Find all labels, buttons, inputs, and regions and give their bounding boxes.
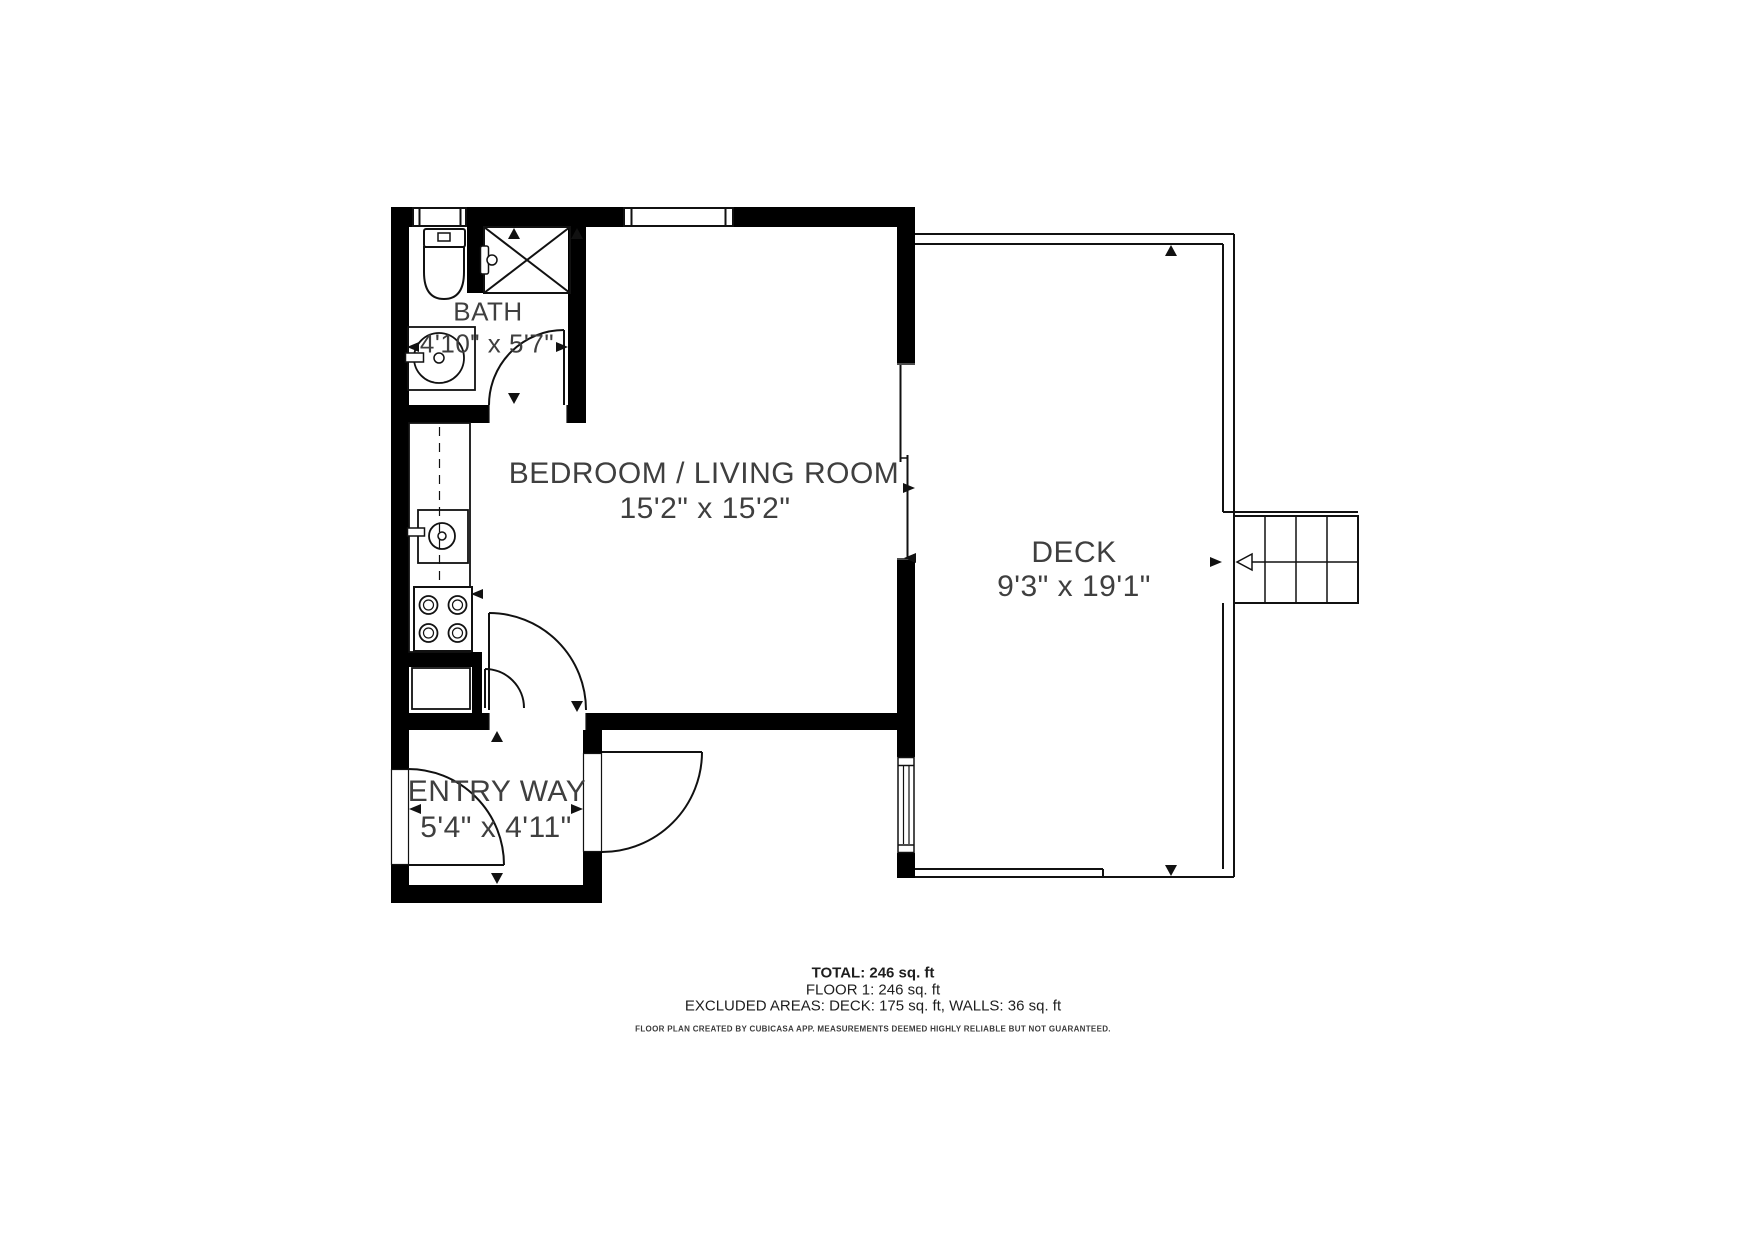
summary-total: TOTAL: 246 sq. ft — [812, 965, 935, 982]
kitchen-sink-icon — [408, 510, 469, 563]
summary-excluded: EXCLUDED AREAS: DECK: 175 sq. ft, WALLS:… — [685, 998, 1061, 1015]
stairs-icon — [1234, 516, 1358, 603]
wall-nook-right — [472, 667, 482, 713]
dimension-arrow — [1165, 865, 1177, 876]
kitchen-counter — [409, 423, 470, 652]
dimension-arrow — [571, 701, 583, 712]
summary-floor1: FLOOR 1: 246 sq. ft — [806, 982, 940, 999]
closet-door-swing — [485, 669, 524, 708]
room-label-bedroom: BEDROOM / LIVING ROOM — [509, 457, 900, 491]
room-dims-entry: 5'4" x 4'11" — [420, 811, 572, 845]
front-door-gap — [391, 769, 409, 865]
window-right-gap — [897, 757, 915, 853]
interior-door-gap — [489, 713, 586, 730]
window-bedroom-gap — [623, 207, 734, 227]
wall-stove-stub — [391, 652, 482, 667]
dimension-arrow — [1210, 557, 1222, 567]
room-dims-bath: 4'10" x 5'7" — [420, 329, 554, 360]
dimension-arrow — [556, 342, 568, 352]
wall-entry-bottom — [391, 885, 602, 903]
shower-icon — [481, 227, 571, 293]
wall-shower-left — [467, 227, 484, 293]
room-dims-deck: 9'3" x 19'1" — [997, 570, 1151, 604]
room-label-entry: ENTRY WAY — [408, 775, 586, 809]
wall-middle — [391, 713, 915, 730]
dimension-arrow — [508, 228, 520, 239]
dimension-arrow — [508, 393, 520, 404]
stairs-direction-arrow — [1237, 554, 1252, 570]
dimension-arrow — [491, 873, 503, 884]
deck-railing — [915, 234, 1358, 877]
summary-disclaimer: FLOOR PLAN CREATED BY CUBICASA APP. MEAS… — [635, 1025, 1111, 1034]
window-bath-gap — [412, 207, 467, 227]
plan-linework — [0, 0, 1748, 1240]
deck-door-swing — [602, 752, 702, 852]
dimension-arrow — [491, 731, 503, 742]
appliance-icon — [412, 668, 470, 709]
floor-plan-canvas: BATH 4'10" x 5'7" BEDROOM / LIVING ROOM … — [0, 0, 1748, 1240]
stove-icon — [414, 587, 472, 651]
sliding-door-gap — [897, 363, 915, 560]
toilet-icon — [424, 229, 465, 299]
dimension-arrow — [471, 589, 483, 599]
dimension-arrow — [1165, 245, 1177, 256]
room-label-bath: BATH — [453, 297, 522, 328]
wall-bath-right — [568, 227, 586, 423]
interior-door-swing — [489, 613, 586, 710]
room-label-deck: DECK — [1031, 536, 1116, 570]
bath-door-gap — [489, 405, 567, 423]
room-dims-bedroom: 15'2" x 15'2" — [619, 492, 790, 526]
